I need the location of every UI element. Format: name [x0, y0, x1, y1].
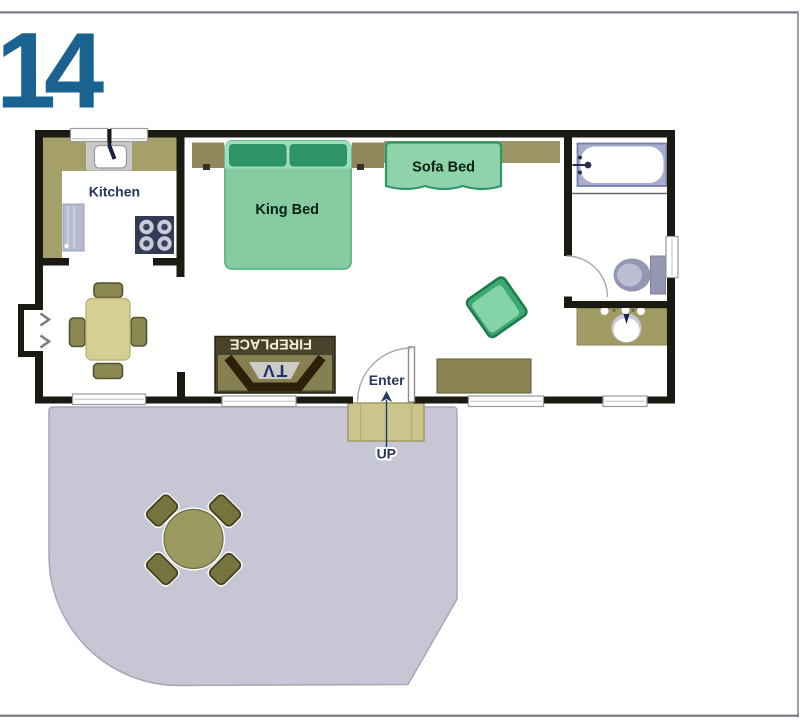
svg-text:FIREPLACE: FIREPLACE	[229, 336, 312, 352]
svg-text:14: 14	[0, 10, 104, 131]
svg-text:UP: UP	[377, 446, 396, 462]
svg-text:Sofa Bed: Sofa Bed	[412, 160, 475, 176]
svg-text:Enter: Enter	[369, 372, 405, 388]
svg-text:Kitchen: Kitchen	[89, 183, 140, 199]
svg-text:King Bed: King Bed	[255, 202, 319, 218]
svg-text:TV: TV	[261, 361, 287, 381]
